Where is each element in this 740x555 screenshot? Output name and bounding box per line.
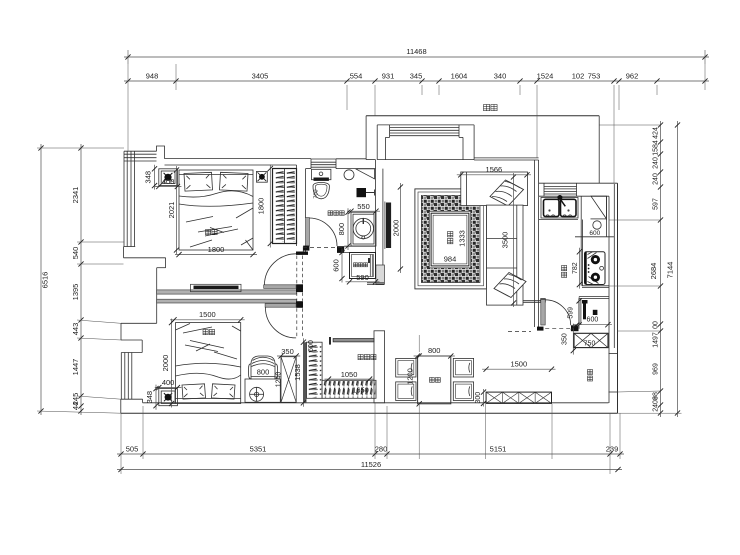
svg-text:600: 600 bbox=[308, 340, 315, 352]
svg-text:300: 300 bbox=[475, 392, 482, 404]
svg-text:1604: 1604 bbox=[451, 72, 468, 81]
svg-text:1333: 1333 bbox=[458, 230, 467, 247]
svg-text:348: 348 bbox=[144, 171, 153, 184]
svg-text:969: 969 bbox=[653, 363, 660, 375]
svg-text:1800: 1800 bbox=[257, 198, 266, 215]
svg-text:280: 280 bbox=[375, 445, 388, 454]
svg-text:102: 102 bbox=[572, 72, 585, 81]
svg-text:2684: 2684 bbox=[649, 263, 658, 280]
svg-text:424: 424 bbox=[653, 127, 660, 139]
svg-text:1538: 1538 bbox=[293, 364, 302, 381]
svg-text:400: 400 bbox=[162, 378, 175, 387]
svg-text:348: 348 bbox=[145, 391, 154, 404]
svg-text:984: 984 bbox=[444, 255, 457, 264]
svg-text:2408: 2408 bbox=[653, 396, 660, 412]
svg-text:750: 750 bbox=[584, 341, 596, 348]
svg-text:350: 350 bbox=[562, 333, 569, 345]
svg-text:700: 700 bbox=[314, 189, 320, 198]
svg-text:753: 753 bbox=[588, 72, 601, 81]
svg-text:7144: 7144 bbox=[666, 262, 675, 279]
svg-text:1497: 1497 bbox=[653, 332, 660, 348]
svg-text:5151: 5151 bbox=[490, 445, 507, 454]
svg-text:1524: 1524 bbox=[537, 72, 554, 81]
svg-text:1500: 1500 bbox=[510, 359, 527, 368]
svg-text:1650: 1650 bbox=[352, 386, 369, 395]
svg-text:554: 554 bbox=[350, 72, 363, 81]
svg-text:3405: 3405 bbox=[252, 72, 269, 81]
svg-text:597: 597 bbox=[653, 198, 660, 210]
svg-text:600: 600 bbox=[589, 230, 600, 237]
svg-text:800: 800 bbox=[337, 223, 346, 236]
svg-text:1050: 1050 bbox=[341, 370, 358, 379]
svg-text:345: 345 bbox=[410, 72, 423, 81]
svg-text:340: 340 bbox=[494, 72, 507, 81]
svg-text:1584: 1584 bbox=[653, 140, 660, 156]
svg-text:600: 600 bbox=[587, 317, 599, 324]
svg-text:1395: 1395 bbox=[71, 284, 80, 301]
svg-text:1800: 1800 bbox=[208, 245, 225, 254]
svg-text:2021: 2021 bbox=[167, 202, 176, 219]
svg-text:6516: 6516 bbox=[41, 272, 50, 289]
svg-text:782: 782 bbox=[572, 262, 579, 274]
svg-text:800: 800 bbox=[428, 346, 441, 355]
svg-text:931: 931 bbox=[382, 72, 395, 81]
svg-text:240: 240 bbox=[653, 157, 660, 169]
svg-text:239: 239 bbox=[606, 445, 619, 454]
svg-text:600: 600 bbox=[332, 259, 341, 272]
svg-text:599: 599 bbox=[568, 307, 575, 319]
svg-text:11468: 11468 bbox=[406, 47, 426, 56]
svg-text:5351: 5351 bbox=[250, 445, 267, 454]
svg-text:00: 00 bbox=[653, 321, 660, 329]
svg-text:540: 540 bbox=[71, 247, 80, 260]
svg-text:1200: 1200 bbox=[406, 368, 415, 385]
svg-text:590: 590 bbox=[356, 273, 369, 282]
svg-text:400: 400 bbox=[162, 177, 175, 186]
svg-text:240: 240 bbox=[653, 173, 660, 185]
svg-text:1566: 1566 bbox=[486, 165, 503, 174]
svg-text:550: 550 bbox=[357, 202, 370, 211]
svg-text:350: 350 bbox=[281, 347, 294, 356]
svg-text:1447: 1447 bbox=[71, 359, 80, 376]
svg-text:11526: 11526 bbox=[361, 460, 381, 469]
svg-text:1240: 1240 bbox=[276, 372, 283, 388]
svg-text:44: 44 bbox=[71, 402, 80, 410]
svg-text:2000: 2000 bbox=[391, 220, 400, 237]
svg-text:948: 948 bbox=[146, 72, 159, 81]
svg-text:1500: 1500 bbox=[199, 310, 216, 319]
svg-text:2000: 2000 bbox=[161, 355, 170, 372]
svg-text:800: 800 bbox=[257, 368, 270, 377]
svg-text:962: 962 bbox=[626, 72, 639, 81]
svg-text:3500: 3500 bbox=[501, 232, 510, 249]
svg-text:505: 505 bbox=[126, 445, 139, 454]
svg-text:443: 443 bbox=[71, 323, 80, 336]
svg-text:2341: 2341 bbox=[71, 187, 80, 204]
